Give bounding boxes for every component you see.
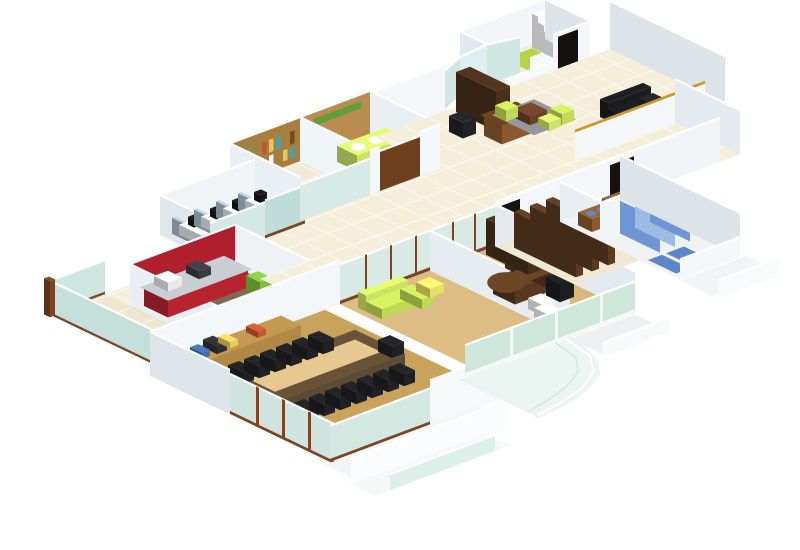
book bbox=[283, 149, 288, 162]
book bbox=[269, 138, 274, 153]
toilet-sinks-1 bbox=[586, 211, 596, 217]
training-sinks bbox=[351, 143, 366, 151]
stair-step-6-side bbox=[532, 14, 538, 51]
front-post-2 bbox=[555, 310, 558, 343]
wing-post-1-front bbox=[50, 279, 55, 317]
partition-wall-left bbox=[325, 260, 340, 310]
office-3d-floorplan-render bbox=[0, 0, 800, 550]
floorplan-canvas bbox=[0, 0, 800, 550]
front-post-3 bbox=[600, 293, 603, 326]
conf-mullion-1 bbox=[256, 386, 259, 428]
training-front-wall-r bbox=[420, 125, 440, 177]
meeting-mullion-3 bbox=[415, 235, 417, 276]
book bbox=[262, 141, 267, 156]
training-front-wall-l bbox=[370, 147, 380, 195]
exec-mullion-2 bbox=[474, 213, 476, 254]
stair-step-5-side bbox=[538, 23, 544, 54]
book bbox=[290, 130, 295, 145]
front-post-1 bbox=[510, 327, 513, 360]
wing-post-1-side bbox=[44, 278, 50, 317]
book bbox=[276, 135, 281, 150]
conf-mullion-3 bbox=[308, 411, 311, 452]
conf-mullion-2 bbox=[282, 399, 285, 441]
book bbox=[290, 146, 295, 159]
